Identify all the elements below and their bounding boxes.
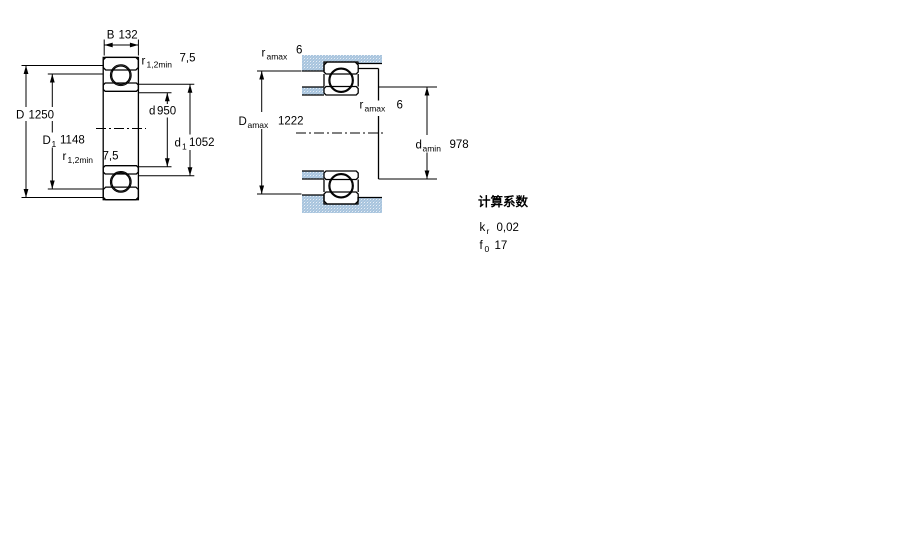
dim-ra-top-subscript: amax	[267, 52, 289, 62]
factor-f0-label: f	[480, 240, 484, 252]
factor-f0-subscript: 0	[485, 244, 490, 254]
arrow-d-up-icon	[165, 93, 170, 102]
arrow-da-up-icon	[425, 87, 430, 96]
dim-r-top-subscript: 1,2min	[147, 60, 173, 70]
mounted-inner-ring-bottom	[324, 171, 358, 180]
mounted-ball-top	[330, 69, 353, 92]
arrow-d1-down-icon	[188, 167, 193, 176]
outer-ring-top	[103, 57, 138, 70]
arrow-d1-up-icon	[188, 84, 193, 93]
dim-ra-mid-label: r	[360, 100, 364, 112]
factor-kr-label: k	[480, 222, 486, 234]
arrow-d-down-icon	[165, 158, 170, 167]
dim-r-top-value: 7,5	[180, 53, 196, 65]
dim-da-subscript: amin	[423, 144, 442, 154]
dim-r-top-label: r	[142, 56, 146, 68]
dim-d1-subscript: 1	[182, 142, 187, 152]
factor-kr-subscript: r	[487, 226, 490, 236]
mounted-inner-ring-top	[324, 87, 358, 96]
dim-D1-subscript: 1	[52, 139, 57, 149]
dim-d1-label: d	[175, 138, 181, 150]
dim-d-value: 950	[157, 106, 176, 118]
arrow-Da-down-icon	[259, 186, 264, 195]
factor-kr-value: 0,02	[497, 222, 519, 234]
dim-d-label: d	[149, 106, 155, 118]
dim-r-bottom-value: 7,5	[103, 151, 119, 163]
dim-ra-mid-value: 6	[397, 100, 403, 112]
dim-B-label: B	[107, 30, 115, 42]
section-view-figure: B 132 r 1,2min 7,5 D 1250 D 1 1148 r 1,2…	[14, 30, 219, 200]
dim-Da-subscript: amax	[248, 120, 270, 130]
ball-top	[112, 66, 130, 84]
outer-ring-bottom	[103, 187, 138, 200]
dim-da-value: 978	[450, 139, 469, 151]
dim-B-value: 132	[119, 30, 138, 42]
bearing-dimension-drawing: B 132 r 1,2min 7,5 D 1250 D 1 1148 r 1,2…	[0, 0, 900, 560]
dim-D-label: D	[16, 109, 24, 121]
dim-ra-top-value: 6	[296, 45, 302, 57]
dim-r-bottom-label: r	[63, 151, 67, 163]
dim-D1-label: D	[43, 135, 51, 147]
arrow-Da-up-icon	[259, 71, 264, 80]
arrow-da-down-icon	[425, 171, 430, 180]
dim-Da-label: D	[239, 116, 247, 128]
arrow-B-left-icon	[104, 43, 113, 48]
arrow-B-right-icon	[130, 43, 139, 48]
mounted-groove-top	[329, 68, 354, 93]
dim-D1-value: 1148	[60, 135, 85, 147]
shaft-shoulder-top	[302, 87, 324, 95]
dim-ra-mid-subscript: amax	[365, 104, 387, 114]
dim-Da-value: 1222	[278, 116, 304, 128]
mounted-ball-bottom	[330, 174, 353, 197]
arrow-D-up-icon	[24, 66, 29, 75]
arrow-D-down-icon	[24, 189, 29, 198]
dim-d1-value: 1052	[189, 137, 215, 149]
calculation-factors: 计算系数 k r 0,02 f 0 17	[478, 194, 529, 254]
factor-f0-value: 17	[495, 240, 508, 252]
calculation-factors-title: 计算系数	[478, 194, 529, 209]
arrow-D1-down-icon	[50, 181, 55, 190]
mounted-groove-bottom	[329, 173, 354, 198]
dim-r-bottom-subscript: 1,2min	[68, 155, 94, 165]
ball-bottom	[112, 173, 130, 191]
arrow-D1-up-icon	[50, 74, 55, 83]
mounting-view-figure: r amax 6 D amax 1222 r amax 6 d amin 978	[237, 45, 469, 214]
dim-ra-top-label: r	[262, 48, 266, 60]
shaft-shoulder-bottom	[302, 171, 324, 179]
drawing-svg: B 132 r 1,2min 7,5 D 1250 D 1 1148 r 1,2…	[0, 0, 900, 560]
dim-D-value: 1250	[29, 109, 55, 121]
dim-da-label: d	[416, 140, 422, 152]
